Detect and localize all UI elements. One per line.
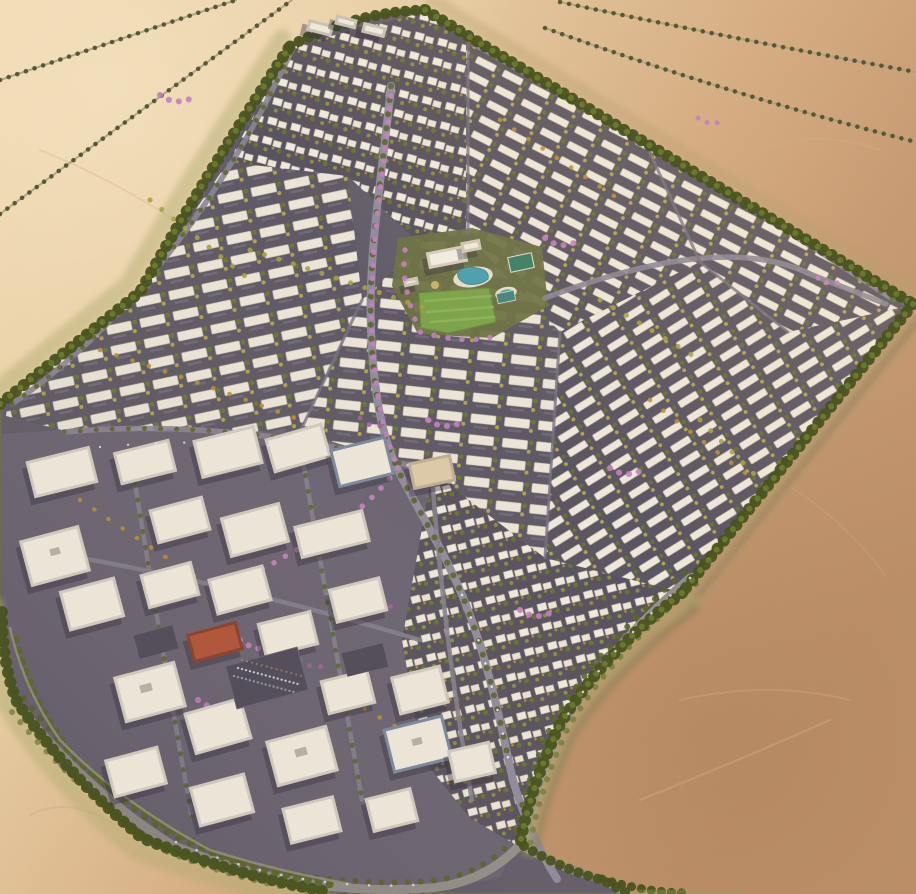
aerial-render: [0, 0, 916, 894]
aerial-render-canvas: [0, 0, 916, 894]
